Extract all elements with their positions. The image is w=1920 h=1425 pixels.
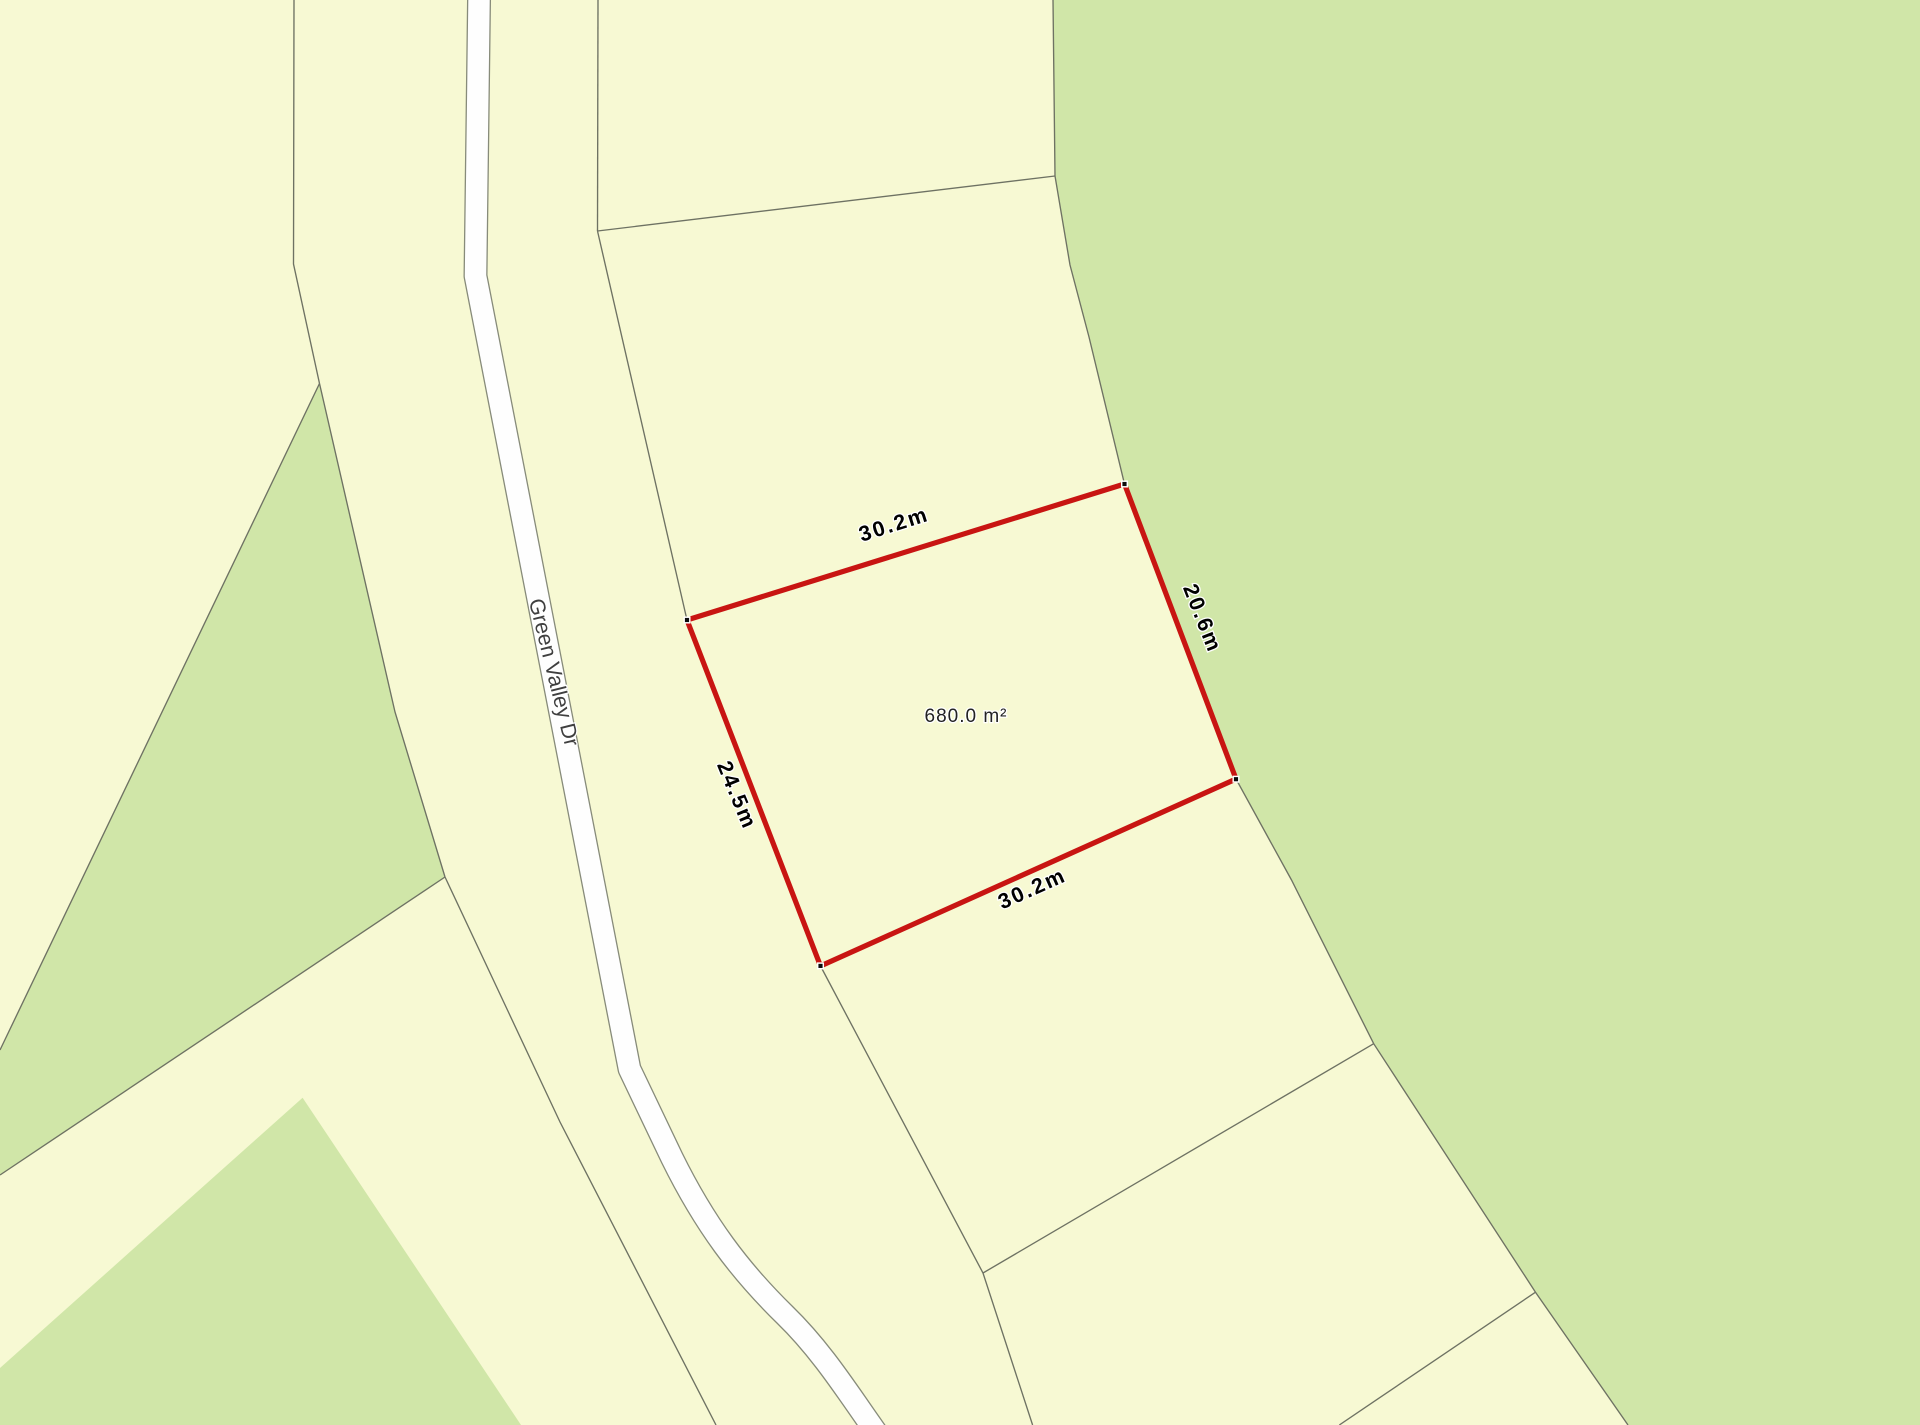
svg-text:680.0 m²: 680.0 m² [925, 706, 1008, 727]
